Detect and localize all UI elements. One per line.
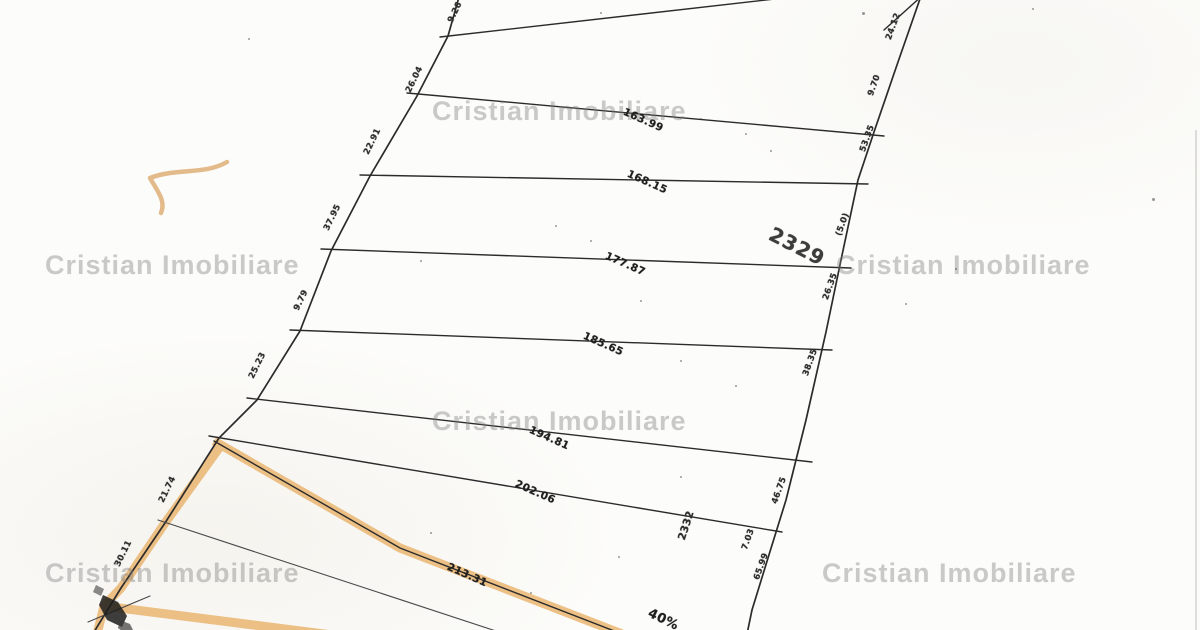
watermark-text: Cristian Imobiliare: [822, 558, 1077, 589]
watermark-text: Cristian Imobiliare: [45, 558, 300, 589]
parcel-division-lines: [88, 0, 923, 630]
scan-speck: [700, 118, 702, 120]
scan-speck: [600, 12, 602, 14]
scan-speck: [618, 556, 620, 558]
scan-speck: [555, 225, 557, 227]
scan-speck: [590, 240, 592, 242]
scan-speck: [1032, 8, 1034, 10]
cadastral-plan-scan: Cristian ImobiliareCristian ImobiliareCr…: [0, 0, 1200, 630]
scan-speck: [955, 268, 957, 270]
scan-speck: [530, 592, 532, 594]
watermark-text: Cristian Imobiliare: [432, 406, 687, 437]
scan-speck: [1152, 198, 1155, 201]
scan-speck: [680, 360, 682, 362]
scan-speck: [770, 150, 772, 152]
scan-edge-shadow: [1195, 130, 1197, 630]
property-boundaries: [93, 0, 921, 630]
watermark-text: Cristian Imobiliare: [45, 250, 300, 281]
scan-speck: [745, 133, 747, 135]
scan-speck: [905, 303, 907, 305]
scan-speck: [420, 260, 422, 262]
highlighter-squiggle: [150, 162, 227, 213]
scan-speck: [640, 300, 642, 302]
parcel-lines-drawing: [0, 0, 1200, 630]
watermark-text: Cristian Imobiliare: [836, 250, 1091, 281]
scan-speck: [430, 532, 432, 534]
scan-speck: [735, 385, 737, 387]
scan-speck: [248, 38, 250, 40]
highlighted-parcel: [97, 441, 622, 630]
scan-speck: [680, 476, 682, 478]
scan-speck: [862, 12, 865, 15]
